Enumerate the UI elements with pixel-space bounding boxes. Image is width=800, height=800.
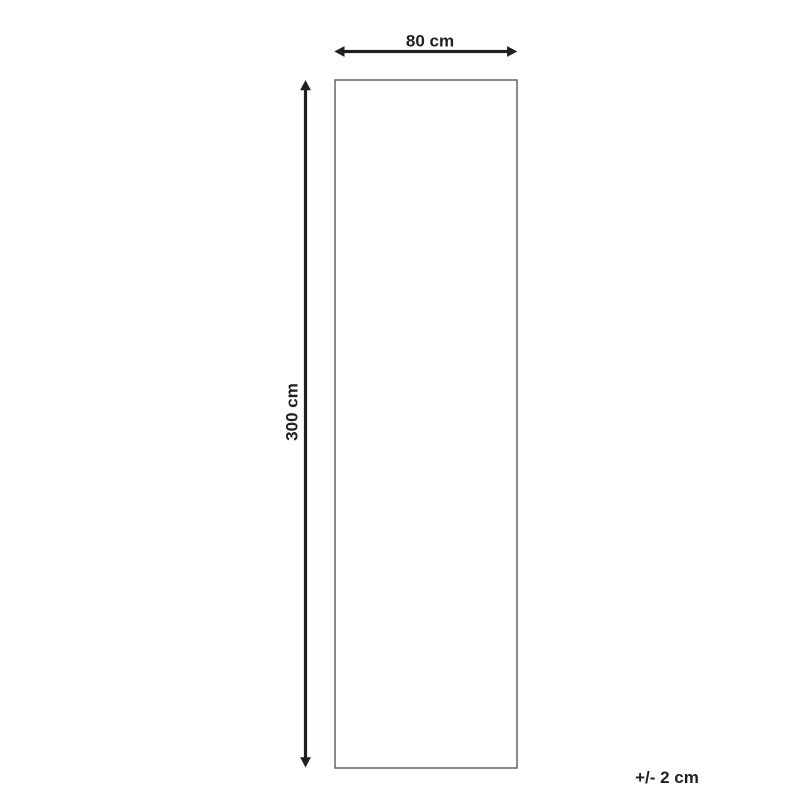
- svg-text:+/- 2 cm: +/- 2 cm: [635, 768, 699, 787]
- svg-text:80 cm: 80 cm: [406, 32, 454, 51]
- svg-text:300 cm: 300 cm: [283, 383, 302, 441]
